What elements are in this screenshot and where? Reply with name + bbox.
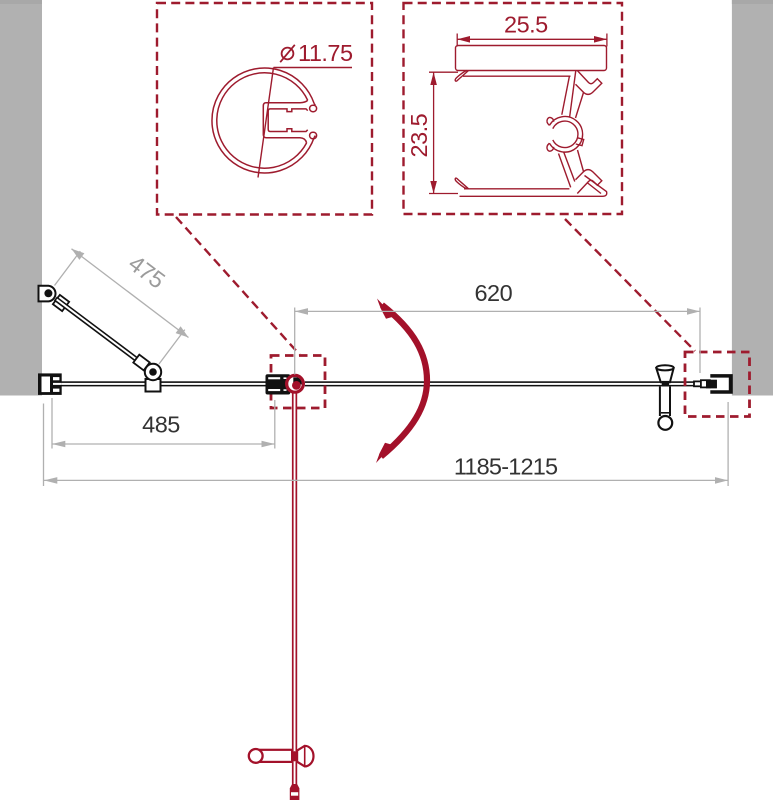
svg-text:475: 475	[124, 250, 170, 294]
svg-text:11.75: 11.75	[298, 40, 353, 66]
svg-text:1185-1215: 1185-1215	[454, 454, 558, 480]
svg-text:23.5: 23.5	[406, 113, 432, 157]
svg-text:25.5: 25.5	[504, 12, 548, 38]
svg-text:620: 620	[474, 280, 512, 306]
svg-text:485: 485	[142, 412, 180, 438]
